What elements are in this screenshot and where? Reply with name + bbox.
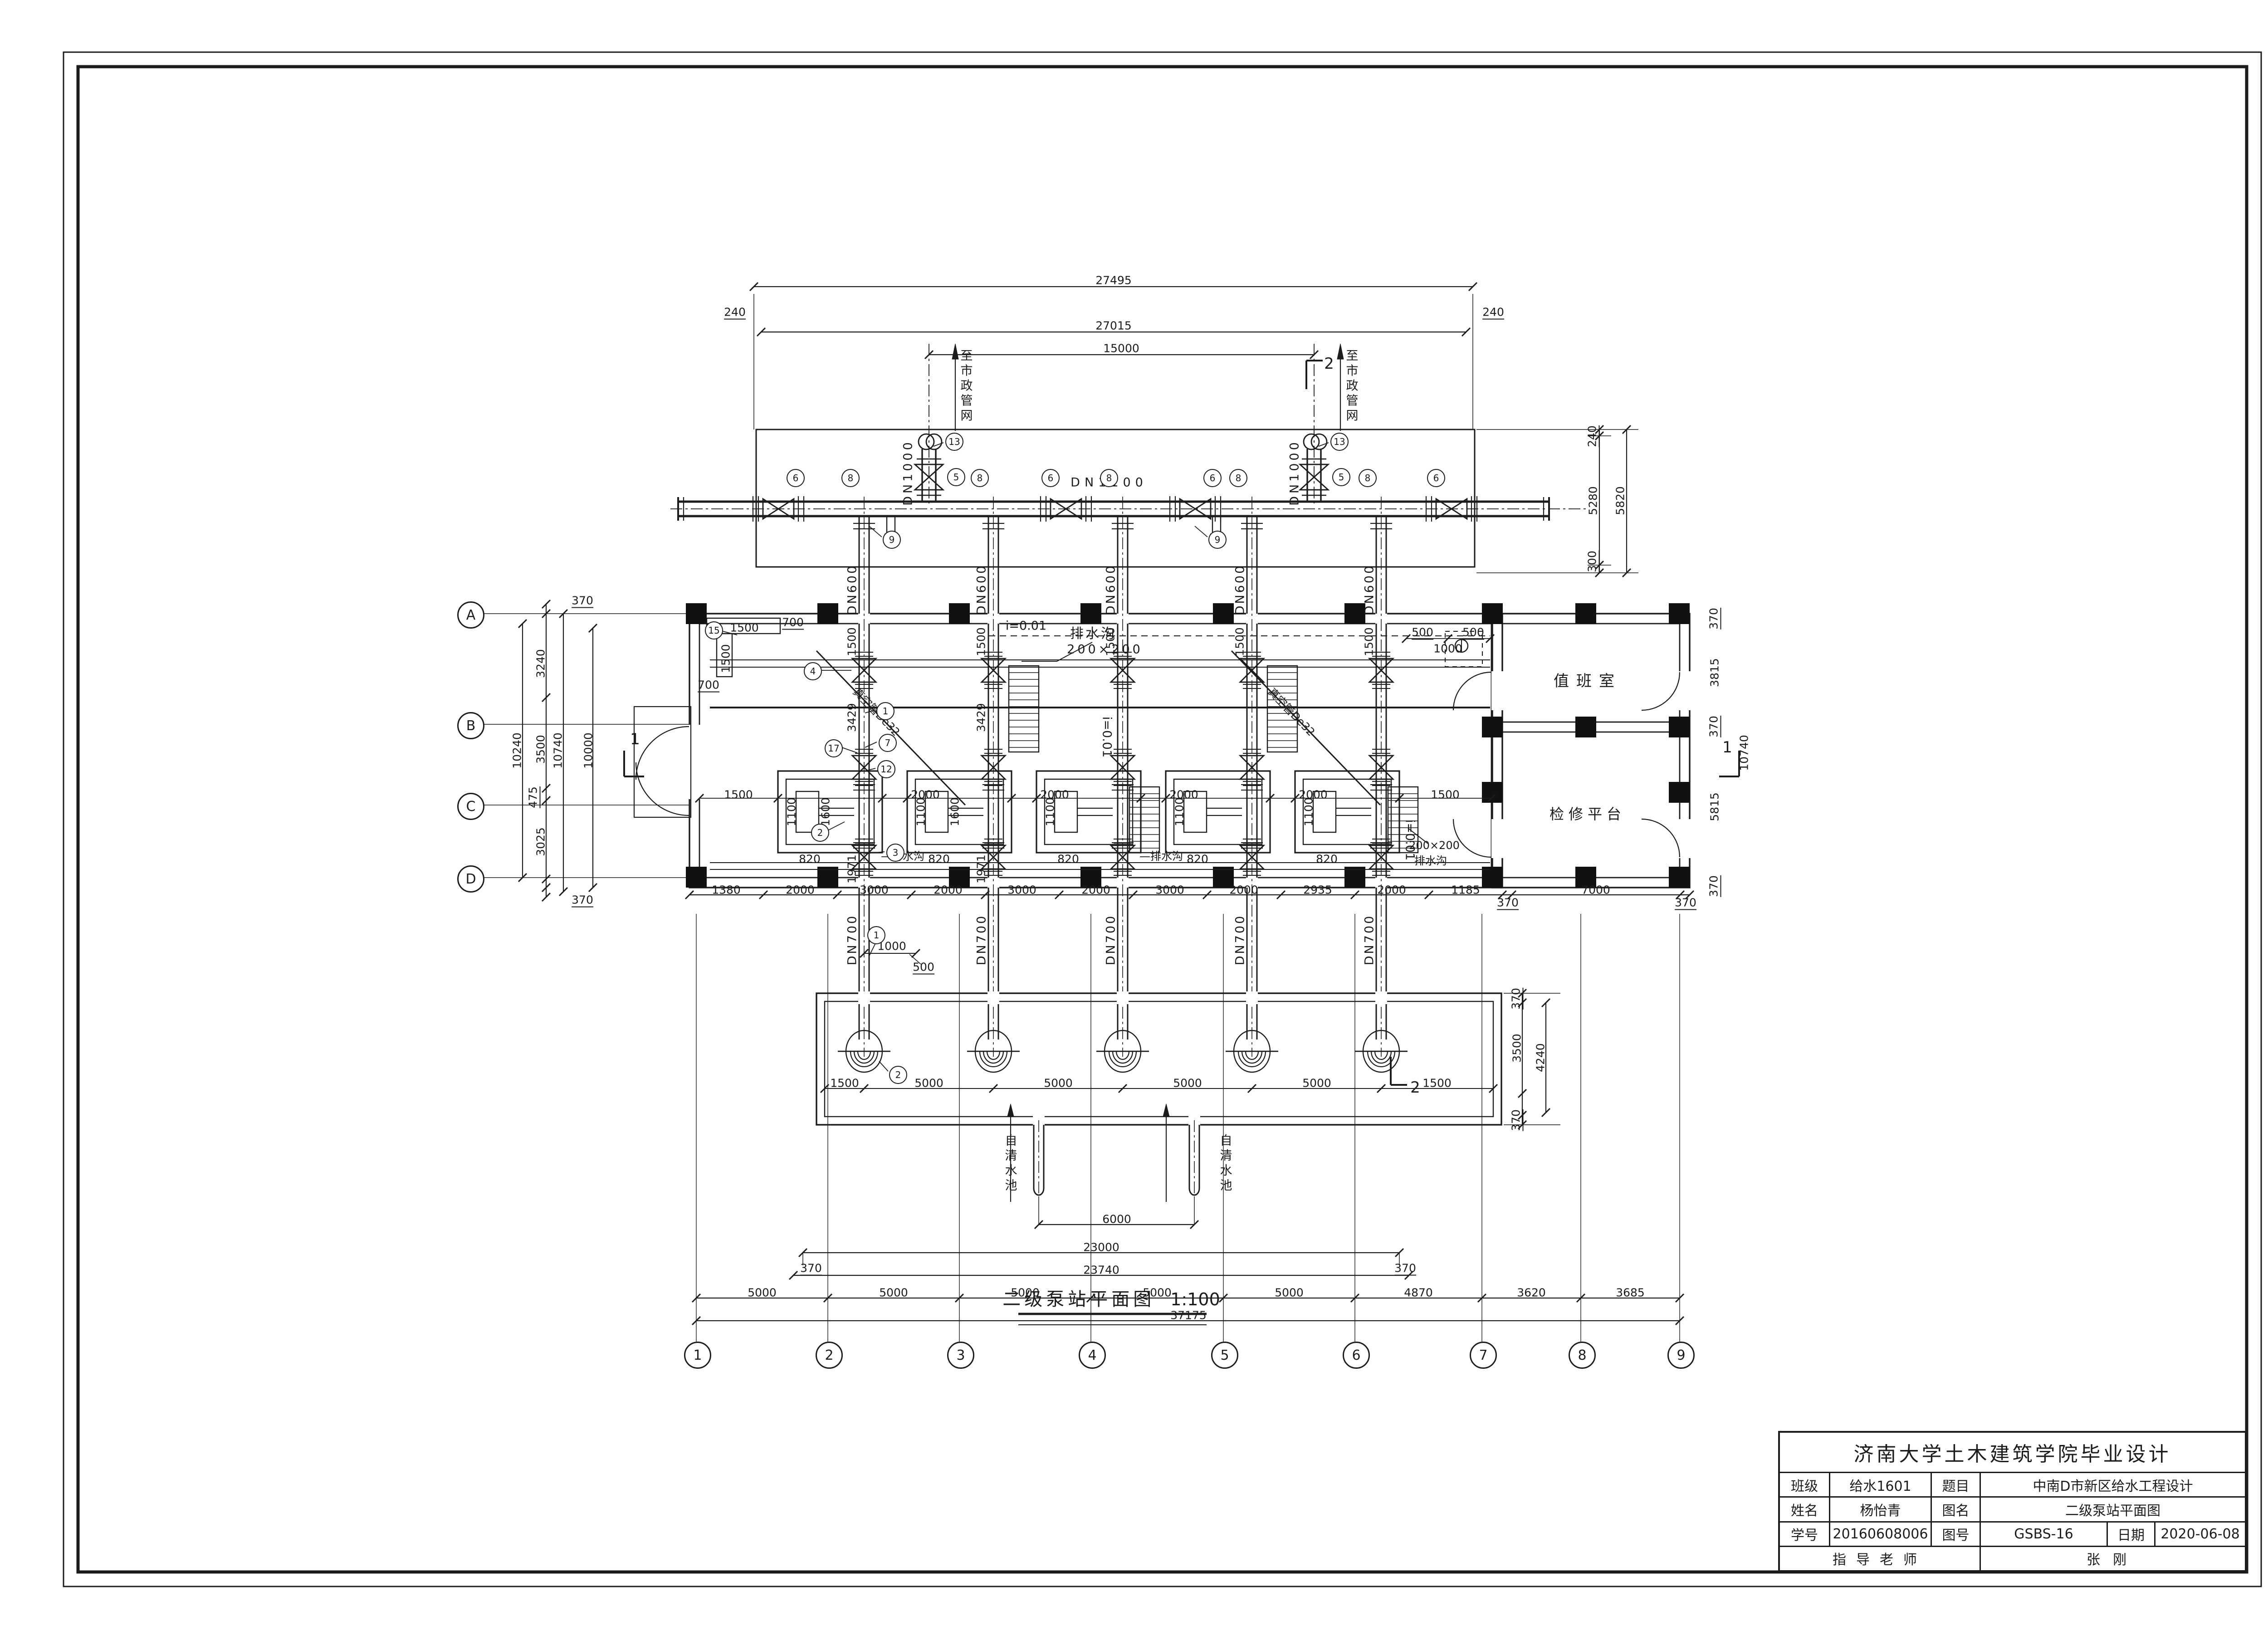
- circle-tag: 5: [947, 468, 965, 486]
- figno-value: GSBS-16: [1980, 1523, 2107, 1546]
- name-label: 姓名: [1780, 1498, 1829, 1521]
- dim-label: 475: [528, 786, 541, 808]
- dim-label: 370: [1708, 716, 1721, 737]
- dim-label: 3685: [1616, 1287, 1645, 1298]
- dim-label: 3240: [535, 649, 547, 678]
- note-label: DN600: [846, 564, 859, 615]
- dim-label: 1100: [1045, 797, 1056, 826]
- circle-tag: 12: [877, 760, 895, 778]
- circle-tag: 8: [1359, 469, 1377, 487]
- drawing-title-scale: 1:100: [1170, 1289, 1220, 1309]
- note-label: 200×200: [1067, 644, 1143, 656]
- circle-tag: 8: [1100, 469, 1118, 487]
- note-label: DN700: [846, 914, 859, 966]
- note-label: 值班室: [1554, 674, 1622, 689]
- dim-label: 2000: [1377, 884, 1406, 896]
- dim-label: 2000: [934, 884, 963, 896]
- note-label: DN600: [1105, 564, 1117, 615]
- subject-label: 题目: [1931, 1473, 1980, 1496]
- circle-tag: 8: [971, 469, 989, 487]
- figname-label: 图名: [1931, 1498, 1980, 1521]
- circle-tag: 2: [889, 1066, 907, 1084]
- dim-label: 3000: [1155, 884, 1184, 896]
- dim-label: 15000: [1103, 343, 1139, 354]
- note-label: 至市政管网: [1345, 349, 1357, 424]
- grid-bubble: A: [457, 601, 484, 629]
- dim-label: 500: [913, 962, 934, 975]
- grid-bubble: 5: [1211, 1342, 1238, 1369]
- dim-label: 820: [928, 854, 950, 865]
- circle-tag: 17: [825, 739, 843, 757]
- dim-label: 10240: [512, 732, 523, 769]
- dim-label: 23740: [1083, 1264, 1119, 1276]
- dim-label: 1500: [1234, 627, 1246, 656]
- dim-label: 1500: [1422, 1078, 1452, 1089]
- dim-label: 370: [1675, 897, 1696, 910]
- date-value: 2020-06-08: [2154, 1523, 2245, 1546]
- dim-label: 5000: [1275, 1287, 1304, 1298]
- dim-label: 1500: [720, 644, 732, 673]
- circle-tag: 1: [876, 702, 894, 720]
- note-label: DN1000: [1289, 439, 1301, 506]
- dim-label: 1: [630, 732, 640, 747]
- circle-tag: 13: [945, 433, 963, 451]
- dim-label: 5000: [879, 1287, 908, 1298]
- dim-label: 820: [799, 854, 821, 865]
- dim-label: 1600: [949, 797, 961, 826]
- figname-value: 二级泵站平面图: [1980, 1498, 2245, 1521]
- dim-label: 370: [1510, 988, 1524, 1010]
- dim-label: 4240: [1535, 1043, 1546, 1072]
- dim-label: 1500: [830, 1078, 859, 1089]
- note-label: DN700: [1364, 914, 1376, 966]
- note-label: DN600: [1234, 564, 1246, 615]
- dim-label: 3429: [846, 703, 858, 732]
- dim-label: 370: [1708, 875, 1721, 897]
- dim-label: 3500: [535, 735, 547, 764]
- dim-label: 3429: [976, 703, 987, 732]
- dim-label: 2: [1324, 356, 1334, 371]
- dim-label: 1500: [724, 789, 753, 800]
- grid-bubble: 2: [816, 1342, 843, 1369]
- dim-label: 2935: [1303, 884, 1332, 896]
- dim-label: 3620: [1517, 1287, 1546, 1298]
- dim-label: 6000: [1102, 1214, 1131, 1225]
- dim-label: 370: [572, 894, 593, 908]
- dim-label: 1500: [846, 627, 858, 656]
- dim-label: 5000: [748, 1287, 777, 1298]
- dim-label: 1380: [712, 884, 741, 896]
- subject-value: 中南D市新区给水工程设计: [1980, 1473, 2245, 1496]
- circle-tag: 3: [886, 844, 904, 862]
- drawing-title: 二级泵站平面图1:100: [993, 1284, 1229, 1311]
- title-block-school: 济南大学土木建筑学院毕业设计: [1780, 1433, 2245, 1472]
- circle-tag: 6: [1203, 469, 1222, 487]
- dim-label: 1185: [1451, 884, 1480, 896]
- dim-label: 1100: [1303, 797, 1315, 826]
- grid-bubble: D: [457, 865, 484, 893]
- circle-tag: 8: [841, 469, 860, 487]
- name-value: 杨怡青: [1829, 1498, 1931, 1521]
- dim-label: 820: [1057, 854, 1079, 865]
- plan-linework: [0, 0, 2268, 1640]
- circle-tag: 7: [879, 734, 897, 752]
- note-label: DN700: [1234, 914, 1246, 966]
- dim-label: 820: [1316, 854, 1338, 865]
- class-label: 班级: [1780, 1473, 1829, 1496]
- dim-label: 1600: [820, 797, 831, 826]
- circle-tag: 13: [1330, 433, 1349, 451]
- dim-label: 37175: [1170, 1310, 1207, 1321]
- note-label: 至市政管网: [959, 349, 972, 424]
- dim-label: 2000: [1081, 884, 1110, 896]
- dim-label: 370: [572, 595, 593, 608]
- dim-label: 370: [1394, 1263, 1416, 1276]
- dim-label: 1500: [1364, 627, 1375, 656]
- advisor-value: 张刚: [1980, 1547, 2245, 1570]
- circle-tag: 9: [883, 531, 901, 549]
- drawing-sheet: 2749524024027015150002405280300582037037…: [0, 0, 2268, 1640]
- circle-tag: 8: [1229, 469, 1247, 487]
- dim-label: 10000: [583, 732, 594, 769]
- note-label: DN1000: [902, 439, 914, 506]
- note-label: i=0.01: [1101, 717, 1113, 757]
- grid-bubble: C: [457, 793, 484, 820]
- circle-tag: 6: [787, 469, 805, 487]
- note-label: 200×200: [1409, 840, 1460, 851]
- dim-label: 1971: [976, 854, 987, 883]
- dim-label: 240: [1482, 307, 1504, 320]
- grid-bubble: 9: [1667, 1342, 1695, 1369]
- note-label: 检修平台: [1549, 807, 1626, 821]
- dim-label: 1000: [1433, 643, 1462, 654]
- dim-label: 5000: [1173, 1078, 1202, 1089]
- dim-label: 1500: [1431, 789, 1460, 800]
- dim-label: 5000: [914, 1078, 943, 1089]
- figno-label: 图号: [1931, 1523, 1980, 1546]
- dim-label: 820: [1187, 854, 1208, 865]
- dim-label: 10740: [1739, 735, 1750, 771]
- note-label: DN600: [1364, 564, 1376, 615]
- date-label: 日期: [2107, 1523, 2154, 1546]
- dim-label: 3000: [860, 884, 889, 896]
- circle-tag: 5: [1332, 468, 1350, 486]
- dim-label: 500: [1412, 627, 1433, 640]
- circle-tag: 9: [1208, 531, 1227, 549]
- dim-label: 1100: [915, 797, 927, 826]
- circle-tag: 1: [867, 926, 885, 944]
- grid-bubble: 3: [947, 1342, 974, 1369]
- dim-label: 1500: [730, 622, 759, 634]
- grid-bubble: 1: [684, 1342, 711, 1369]
- dim-label: 1: [1722, 740, 1732, 755]
- note-label: 自清水池: [1219, 1134, 1231, 1194]
- dim-label: 3025: [535, 827, 547, 856]
- dim-label: 5000: [1044, 1078, 1073, 1089]
- dim-label: 1500: [976, 627, 987, 656]
- dim-label: 500: [1462, 627, 1484, 640]
- dim-label: 240: [724, 307, 746, 320]
- dim-label: 3500: [1511, 1034, 1523, 1063]
- dim-label: 5815: [1709, 792, 1721, 821]
- dim-label: 5000: [1302, 1078, 1331, 1089]
- circle-tag: 6: [1041, 469, 1060, 487]
- dim-label: 2000: [1229, 884, 1258, 896]
- grid-bubble: 4: [1079, 1342, 1106, 1369]
- dim-label: 300: [1587, 551, 1600, 572]
- circle-tag: 15: [705, 621, 723, 639]
- sid-value: 20160608006: [1829, 1523, 1931, 1546]
- dim-label: 5820: [1615, 486, 1626, 515]
- dim-label: 2000: [786, 884, 815, 896]
- grid-bubble: 7: [1470, 1342, 1497, 1369]
- dim-label: 370: [1510, 1109, 1524, 1131]
- note-label: DN700: [1105, 914, 1117, 966]
- advisor-label: 指导老师: [1780, 1547, 1980, 1570]
- dim-label: 27495: [1095, 275, 1132, 286]
- note-label: DN600: [976, 564, 988, 615]
- note-label: 排水沟: [1414, 855, 1447, 866]
- drawing-title-text: 二级泵站平面图: [1002, 1289, 1155, 1310]
- dim-label: 3000: [1007, 884, 1036, 896]
- dim-label: 27015: [1095, 320, 1132, 332]
- dim-label: 700: [698, 679, 719, 693]
- dim-label: 1100: [1174, 797, 1185, 826]
- dim-label: 370: [1708, 608, 1721, 630]
- dim-label: 370: [1497, 897, 1519, 910]
- dim-label: 23000: [1083, 1242, 1119, 1253]
- circle-tag: 6: [1427, 469, 1445, 487]
- dim-label: 1100: [786, 797, 797, 826]
- grid-bubble: B: [457, 712, 484, 739]
- dim-label: 1971: [846, 854, 858, 883]
- note-label: 排水沟: [1070, 627, 1116, 641]
- sid-label: 学号: [1780, 1523, 1829, 1546]
- dim-label: 4870: [1404, 1287, 1433, 1298]
- note-label: i=0.01: [1006, 620, 1046, 632]
- dim-label: 700: [782, 617, 804, 630]
- dim-label: 5280: [1588, 486, 1599, 515]
- grid-bubble: 8: [1569, 1342, 1596, 1369]
- dim-label: 2: [1410, 1080, 1420, 1095]
- dim-label: 3815: [1709, 658, 1721, 687]
- class-value: 给水1601: [1829, 1473, 1931, 1496]
- dim-label: 240: [1587, 425, 1600, 447]
- grid-bubble: 6: [1343, 1342, 1370, 1369]
- circle-tag: 4: [804, 662, 822, 680]
- note-label: 自清水池: [1004, 1134, 1016, 1194]
- dim-label: 7000: [1581, 884, 1610, 896]
- dim-label: 10740: [552, 732, 564, 769]
- note-label: —排水沟: [1139, 851, 1183, 862]
- note-label: DN700: [976, 914, 988, 966]
- circle-tag: 2: [811, 824, 829, 842]
- dim-label: 370: [800, 1263, 822, 1276]
- title-block: 济南大学土木建筑学院毕业设计 班级 给水1601 题目 中南D市新区给水工程设计…: [1778, 1431, 2247, 1572]
